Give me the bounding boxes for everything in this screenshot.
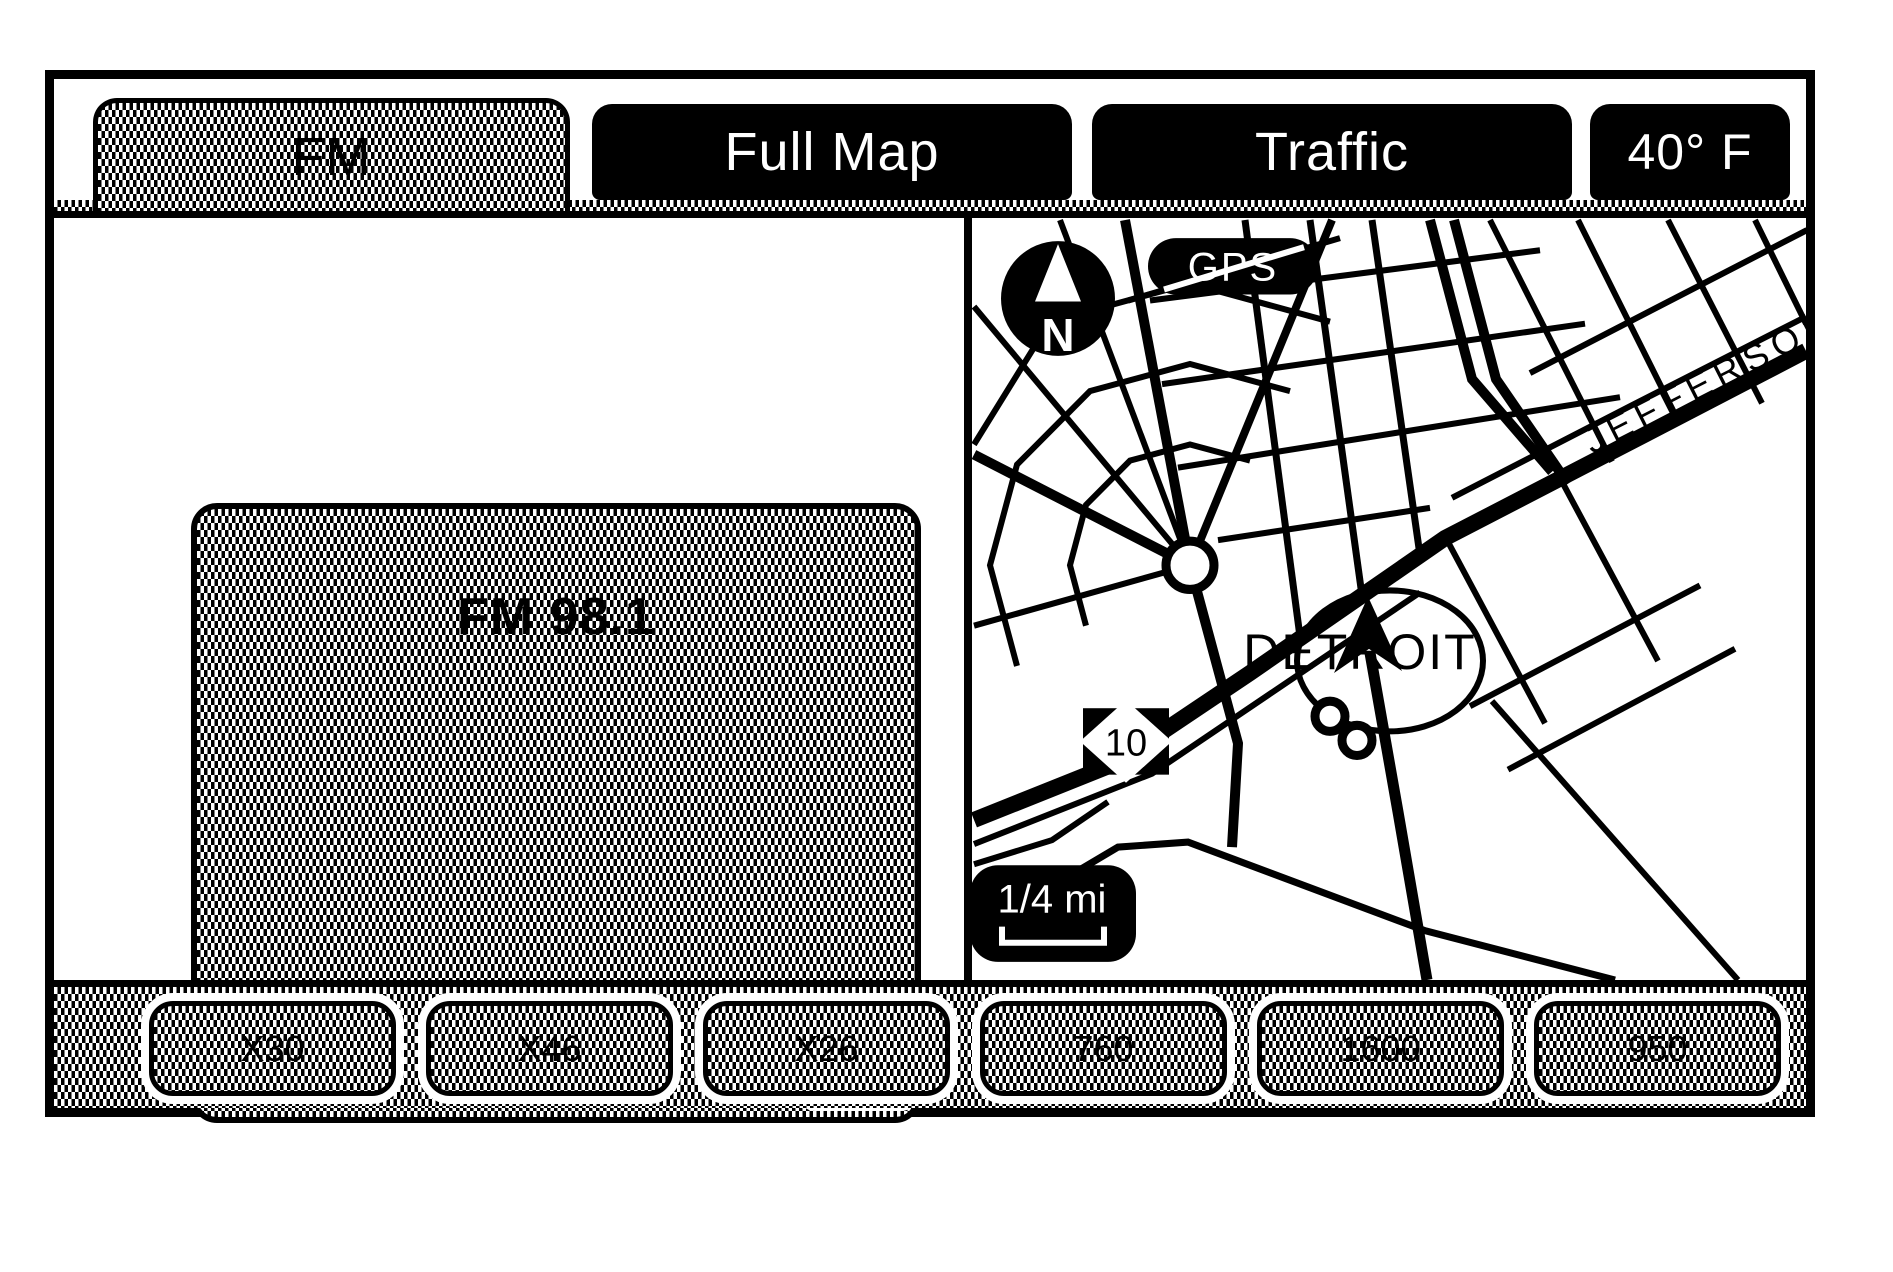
map-scale: 1/4 mi bbox=[972, 865, 1136, 962]
roundabout bbox=[1166, 541, 1214, 589]
tab-fm[interactable]: FM bbox=[93, 98, 570, 211]
compass-north-label: N bbox=[1041, 309, 1074, 361]
preset-label: 950 bbox=[1627, 1028, 1687, 1070]
tab-fm-label: FM bbox=[292, 126, 372, 188]
preset-button-2[interactable]: X46 bbox=[426, 1001, 673, 1096]
map-panel[interactable]: JEFFERSON DETROIT 10 GPS bbox=[972, 218, 1806, 980]
preset-label: 1600 bbox=[1340, 1028, 1420, 1070]
gps-indicator: GPS bbox=[1128, 238, 1340, 300]
highway-shield: 10 bbox=[1080, 700, 1172, 783]
preset-button-5[interactable]: 1600 bbox=[1257, 1001, 1504, 1096]
preset-label: X26 bbox=[794, 1028, 858, 1070]
preset-button-6[interactable]: 950 bbox=[1534, 1001, 1781, 1096]
preset-label: X30 bbox=[240, 1028, 304, 1070]
radio-panel: FM 98.1 FAV 1 bbox=[54, 218, 964, 980]
tab-traffic[interactable]: Traffic bbox=[1092, 104, 1572, 200]
temperature-label: 40° F bbox=[1627, 123, 1752, 181]
map-scale-label: 1/4 mi bbox=[998, 876, 1107, 921]
preset-label: 760 bbox=[1073, 1028, 1133, 1070]
tab-full-map-label: Full Map bbox=[724, 121, 939, 183]
interchange-circle bbox=[1315, 701, 1345, 731]
interchange-circle bbox=[1342, 725, 1372, 755]
preset-bar: X30 X46 X26 760 1600 950 bbox=[54, 980, 1806, 1108]
preset-button-1[interactable]: X30 bbox=[149, 1001, 396, 1096]
street-name-label: JEFFERSON bbox=[1577, 298, 1806, 461]
compass-icon: N bbox=[1001, 241, 1115, 361]
tab-temperature[interactable]: 40° F bbox=[1590, 104, 1790, 200]
preset-label: X46 bbox=[517, 1028, 581, 1070]
preset-button-4[interactable]: 760 bbox=[980, 1001, 1227, 1096]
route-line bbox=[1370, 653, 1427, 980]
infotainment-screen: FM Full Map Traffic 40° F FM 98.1 FAV 1 bbox=[0, 0, 1893, 1272]
tab-traffic-label: Traffic bbox=[1255, 121, 1409, 183]
map-canvas: JEFFERSON DETROIT 10 GPS bbox=[972, 218, 1806, 980]
station-frequency: FM 98.1 bbox=[197, 587, 915, 647]
tab-full-map[interactable]: Full Map bbox=[592, 104, 1072, 200]
content-top-divider bbox=[54, 211, 1806, 218]
panel-divider bbox=[964, 218, 972, 980]
highway-number: 10 bbox=[1105, 721, 1147, 764]
preset-button-3[interactable]: X26 bbox=[703, 1001, 950, 1096]
